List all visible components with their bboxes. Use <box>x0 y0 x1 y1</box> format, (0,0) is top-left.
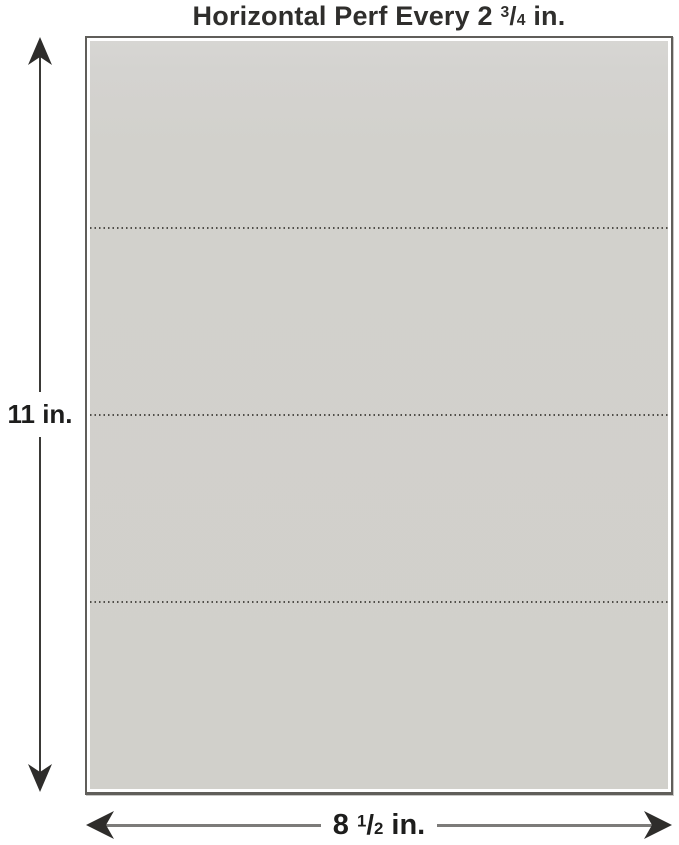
height-label: 11 in. <box>7 399 72 430</box>
width-label-prefix: 8 <box>333 809 349 841</box>
height-dimension-arrow: 11 in. <box>25 36 55 793</box>
height-arrow-shaft-bottom <box>39 437 42 772</box>
width-label-fraction: 1/2 <box>357 809 383 841</box>
height-arrow-shaft-top <box>39 57 42 392</box>
title-fraction-denominator: 4 <box>517 12 526 29</box>
title-prefix: Horizontal Perf Every 2 <box>193 1 493 31</box>
paper-surface <box>90 41 668 789</box>
title-suffix: in. <box>533 1 565 31</box>
width-fraction-slash: / <box>366 809 374 840</box>
arrowhead-left-icon <box>85 808 115 842</box>
title-fraction-slash: / <box>509 3 516 31</box>
perforation-line-2 <box>90 414 668 416</box>
width-fraction-denominator: 2 <box>374 819 383 838</box>
width-dimension-arrow: 8 1/2 in. <box>85 806 673 844</box>
arrowhead-right-icon <box>643 808 673 842</box>
title-fraction: 3/4 <box>500 1 525 31</box>
width-label-suffix: in. <box>391 809 425 841</box>
arrowhead-down-icon <box>25 763 55 793</box>
perforation-line-3 <box>90 601 668 603</box>
width-label: 8 1/2 in. <box>333 809 425 842</box>
perforation-line-1 <box>90 227 668 229</box>
arrowhead-up-icon <box>25 36 55 66</box>
diagram-title: Horizontal Perf Every 2 3/4 in. <box>85 1 673 32</box>
width-arrow-shaft-left <box>106 824 321 827</box>
width-arrow-shaft-right <box>437 824 652 827</box>
paper-sheet <box>85 36 673 795</box>
width-fraction-numerator: 1 <box>357 811 366 830</box>
